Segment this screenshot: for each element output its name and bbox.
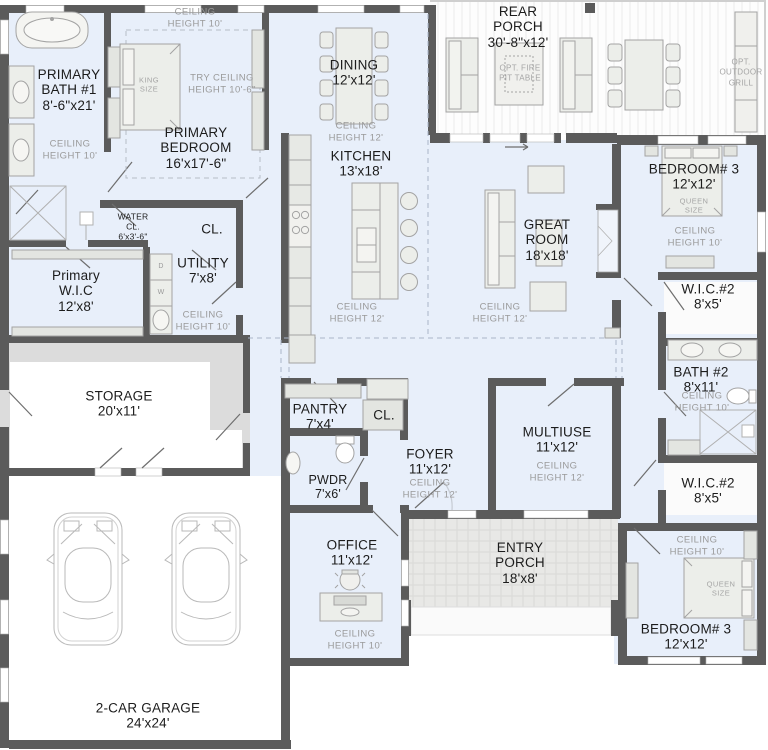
room-label-closet-hall: CL. [192,221,232,236]
room-label-utility: UTILITY 7'x8' [173,256,233,287]
ceiling-label-multiuse: CEILING HEIGHT 12' [526,461,588,486]
king-bed-label: KING SIZE [132,76,166,95]
room-label-dining: DINING 12'x12' [314,58,394,89]
room-label-kitchen: KITCHEN 13'x18' [316,149,406,180]
outdoor-grill-label: OPT. OUTDOOR GRILL [717,57,765,88]
dryer-label: D [153,263,169,271]
ceiling-label-primary-bedroom: CEILING HEIGHT 10' [164,7,226,32]
queen-bed-label-top: QUEEN SIZE [675,197,713,216]
room-label-office: OFFICE 11'x12' [317,538,387,569]
tray-ceiling-label: TRY CEILING HEIGHT 10'-6" [185,73,259,98]
room-label-closet-foyer: CL. [365,407,403,422]
queen-bed-label-bottom: QUEEN SIZE [702,580,740,599]
ceiling-label-great-room: CEILING HEIGHT 12' [469,302,531,327]
room-label-wic2-top: W.I.C.#2 8'x5' [668,282,748,313]
room-label-primary-wic: Primary W.I.C 12'x8' [50,268,102,314]
room-label-entry-porch: ENTRY PORCH 18'x8' [488,540,552,586]
room-label-water-closet: WATER CL. 6'x3'-6" [115,212,151,243]
room-label-primary-bath: PRIMARY BATH #1 8'-6"x21' [32,67,106,113]
room-label-foyer: FOYER 11'x12' [395,447,465,478]
floor-plan: PRIMARY BATH #1 8'-6"x21' CEILING HEIGHT… [0,0,768,750]
room-label-wic2-bottom: W.I.C.#2 8'x5' [668,476,748,507]
ceiling-label-foyer: CEILING HEIGHT 12' [399,478,461,503]
ceiling-label-bath2: CEILING HEIGHT 10' [667,391,737,416]
room-label-rear-porch: REAR PORCH 30'-8"x12' [482,4,554,50]
ceiling-label-bedroom3-bottom: CEILING HEIGHT 10' [666,535,728,560]
room-label-garage: 2-CAR GARAGE 24'x24' [68,701,228,732]
room-label-primary-bedroom: PRIMARY BEDROOM 16'x17'-6" [148,125,244,171]
washer-label: W [153,289,169,297]
ceiling-label-office: CEILING HEIGHT 10' [324,629,386,654]
room-label-multiuse: MULTIUSE 11'x12' [502,425,612,456]
room-label-great-room: GREAT ROOM 18'x18' [516,217,578,263]
ceiling-label-dining: CEILING HEIGHT 12' [325,121,387,146]
room-label-bedroom3-bottom: BEDROOM# 3 12'x12' [630,622,742,653]
room-label-pwdr: PWDR 7'x6' [300,473,356,502]
car-icon [47,513,129,645]
ceiling-label-utility: CEILING HEIGHT 10' [172,310,234,335]
car-icon [165,513,247,645]
room-label-bedroom3-top: BEDROOM# 3 12'x12' [638,162,750,193]
ceiling-label-kitchen: CEILING HEIGHT 12' [326,302,388,327]
room-label-storage: STORAGE 20'x11' [64,389,174,420]
ceiling-label-primary-bath: CEILING HEIGHT 10' [39,139,101,164]
ceiling-label-bedroom3-top: CEILING HEIGHT 10' [664,226,726,251]
room-label-pantry: PANTRY 7'x4' [285,402,355,433]
fire-pit-label: OPT. FIRE PIT TABLE [498,64,542,85]
